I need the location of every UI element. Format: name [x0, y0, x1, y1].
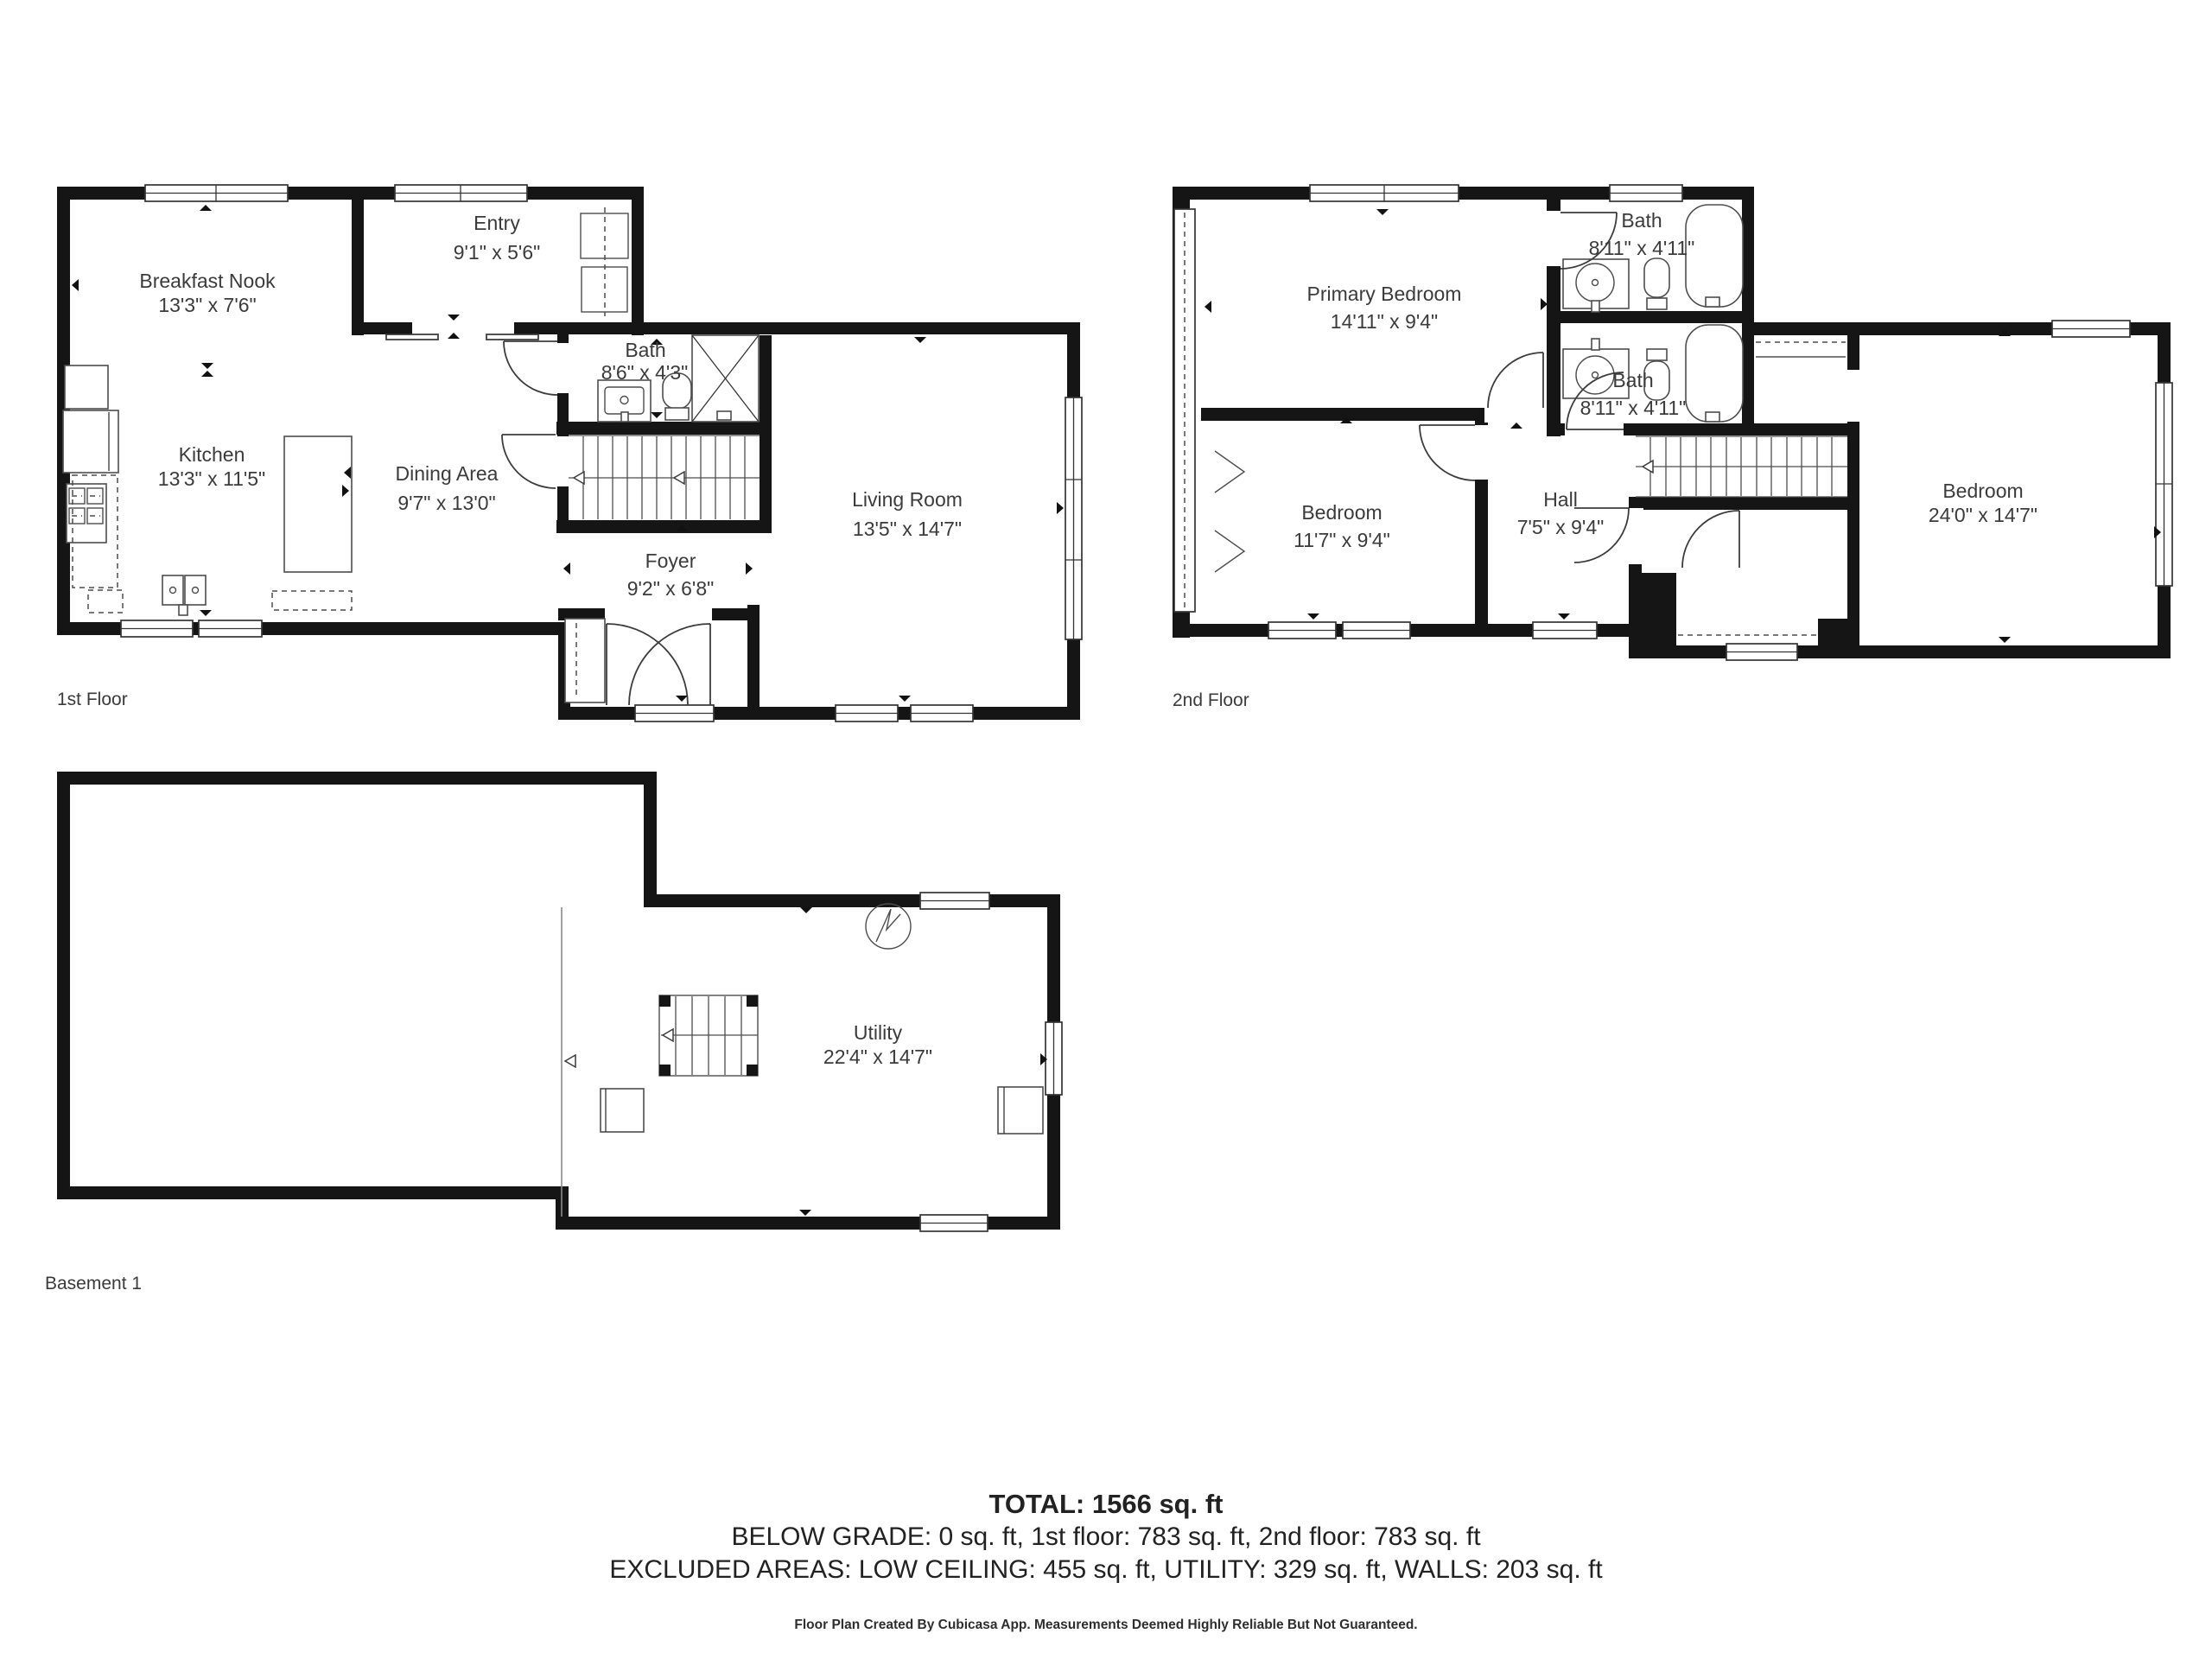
total-area-text: TOTAL: 1566 sq. ft — [0, 1488, 2212, 1521]
room-dims: 9'1" x 5'6" — [454, 241, 541, 264]
room-label: Living Room — [852, 488, 963, 511]
room-dims: 8'11" x 4'11" — [1580, 397, 1687, 419]
room-dims: 13'5" x 14'7" — [853, 518, 962, 540]
first-floor-plan: Breakfast Nook 13'3" x 7'6" Entry 9'1" x… — [43, 173, 1097, 726]
stairs-icon — [569, 435, 760, 519]
room-label: Foyer — [645, 550, 696, 572]
excluded-areas-text: EXCLUDED AREAS: LOW CEILING: 455 sq. ft,… — [0, 1554, 2212, 1586]
room-dims: 13'3" x 11'5" — [158, 467, 265, 490]
room-label: Breakfast Nook — [139, 270, 276, 292]
area-summary: TOTAL: 1566 sq. ft BELOW GRADE: 0 sq. ft… — [0, 1488, 2212, 1586]
furnace-icon — [866, 904, 911, 949]
room-dims: 22'4" x 14'7" — [823, 1046, 932, 1068]
basement-plan: Utility 22'4" x 14'7" — [35, 760, 1106, 1313]
entry-closet-icon — [581, 207, 628, 316]
shower-icon — [692, 335, 759, 422]
counter-dashed — [88, 590, 123, 613]
room-label: Entry — [474, 212, 520, 234]
cabinet-icon — [63, 410, 118, 473]
room-label: Bedroom — [1942, 480, 2023, 502]
first-floor-label: 1st Floor — [57, 690, 128, 710]
room-label: Dining Area — [396, 462, 499, 485]
bath-sink-icon — [598, 380, 651, 422]
room-dims: 24'0" x 14'7" — [1929, 504, 2037, 526]
room-label: Hall — [1543, 488, 1578, 511]
second-floor-plan: Primary Bedroom 14'11" x 9'4" Bath 8'11"… — [1158, 173, 2212, 726]
basement-room-labels: Utility 22'4" x 14'7" — [823, 1021, 932, 1068]
direction-markers — [565, 907, 1047, 1216]
foyer-closet-icon — [565, 619, 605, 702]
below-grade-text: BELOW GRADE: 0 sq. ft, 1st floor: 783 sq… — [0, 1521, 2212, 1554]
room-dims: 8'6" x 4'3" — [601, 361, 689, 384]
room-dims: 8'11" x 4'11" — [1589, 237, 1695, 259]
second-floor-label: 2nd Floor — [1173, 690, 1249, 711]
room-dims: 11'7" x 9'4" — [1294, 529, 1390, 551]
stairs-icon — [659, 995, 758, 1076]
room-dims: 7'5" x 9'4" — [1517, 516, 1605, 538]
first-floor-room-labels: Breakfast Nook 13'3" x 7'6" Entry 9'1" x… — [139, 212, 963, 600]
room-dims: 13'3" x 7'6" — [158, 294, 256, 316]
equipment-icon — [601, 1087, 1043, 1134]
room-label: Utility — [854, 1021, 903, 1044]
stairs-icon — [1636, 436, 1847, 497]
basement-floor-label: Basement 1 — [45, 1274, 142, 1294]
kitchen-peninsula — [284, 436, 352, 572]
room-dims: 14'11" x 9'4" — [1331, 310, 1438, 333]
dishwasher-dashed — [272, 591, 352, 610]
room-label: Bath — [1612, 369, 1653, 391]
room-label: Bath — [625, 339, 665, 361]
kitchen-sink-icon — [162, 575, 206, 615]
fridge-icon — [65, 365, 108, 409]
room-dims: 9'2" x 6'8" — [627, 577, 715, 600]
kitchen-fixtures — [63, 365, 352, 615]
room-label: Primary Bedroom — [1307, 283, 1462, 305]
basement-walls — [57, 772, 1060, 1230]
room-label: Bedroom — [1301, 501, 1382, 524]
disclaimer-text: Floor Plan Created By Cubicasa App. Meas… — [0, 1618, 2212, 1633]
room-label: Kitchen — [179, 443, 245, 466]
room-dims: 9'7" x 13'0" — [397, 492, 495, 514]
floorplan-page: Breakfast Nook 13'3" x 7'6" Entry 9'1" x… — [0, 0, 2212, 1659]
room-label: Bath — [1621, 209, 1662, 232]
